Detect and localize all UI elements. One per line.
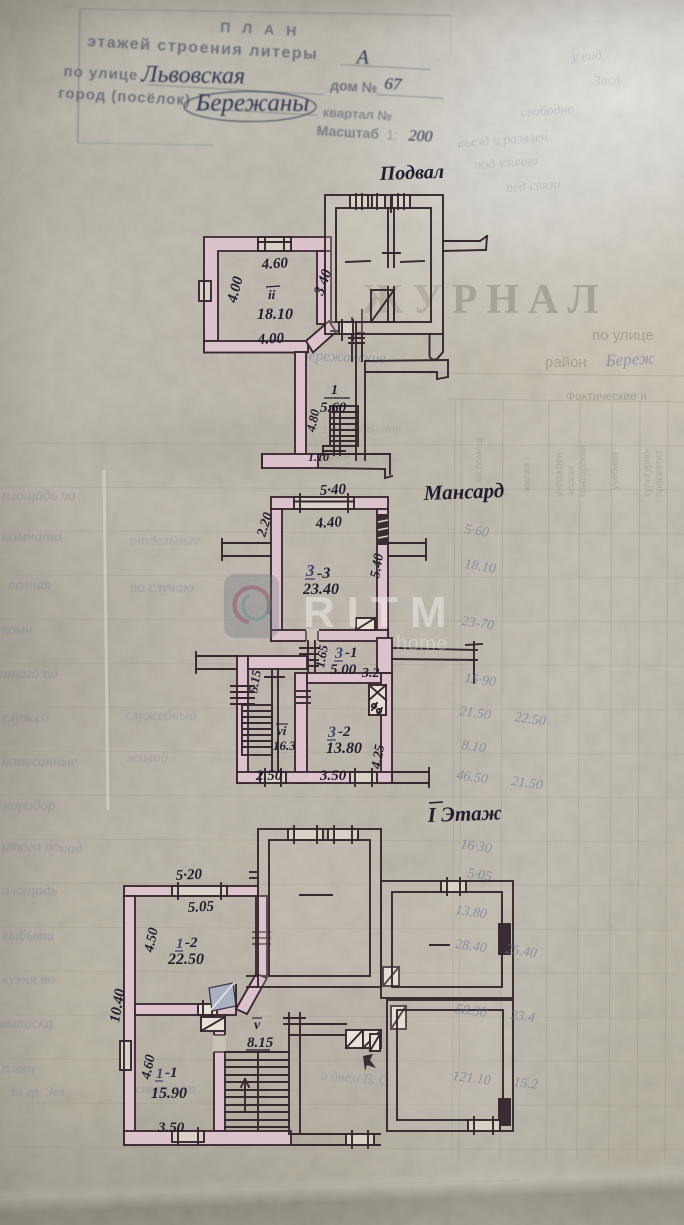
svg-text:-1: -1: [165, 1065, 178, 1081]
svg-text:над: над: [60, 841, 83, 857]
svg-text:итого по: итого по: [0, 666, 58, 682]
svg-text:итого по: итого по: [2, 839, 60, 855]
svg-text:16.3: 16.3: [273, 738, 296, 753]
svg-text:кухня по: кухня по: [2, 972, 56, 988]
svg-text:комната: комната: [2, 528, 62, 545]
svg-text:просветит: просветит: [654, 450, 665, 497]
svg-text:у вид: у вид: [570, 48, 603, 65]
svg-text:5·20: 5·20: [175, 867, 203, 884]
svg-text:-3: -3: [317, 565, 330, 582]
svg-text:5·40: 5·40: [319, 482, 347, 499]
svg-text:1: 1: [176, 936, 184, 952]
svg-text:написанные: написанные: [2, 754, 78, 770]
svg-text:2.50: 2.50: [255, 768, 283, 784]
svg-text:1: 1: [156, 1066, 164, 1082]
svg-text:учрежден-: учрежден-: [554, 449, 565, 497]
svg-text:15.2: 15.2: [513, 1075, 539, 1093]
svg-text:5.05: 5.05: [187, 899, 215, 916]
svg-text:1.10: 1.10: [308, 450, 329, 464]
svg-text:3: 3: [327, 724, 336, 741]
svg-text:дом №: дом №: [330, 77, 378, 96]
svg-text:1: 1: [331, 383, 338, 398]
svg-text:коридор: коридор: [4, 798, 56, 814]
svg-text:-2: -2: [338, 724, 351, 740]
svg-text:15.90: 15.90: [151, 1085, 187, 1102]
svg-text:3.50: 3.50: [157, 1120, 185, 1136]
svg-text:4.00: 4.00: [256, 331, 285, 348]
svg-text:Береж: Береж: [604, 348, 655, 370]
svg-text:Мансард: Мансард: [422, 478, 504, 505]
svg-text:жилой: жилой: [125, 750, 169, 766]
svg-text:площадь ча: площадь ча: [2, 488, 76, 504]
svg-text:Фактические и: Фактические и: [566, 389, 647, 403]
svg-text:Подвал: Подвал: [378, 161, 444, 185]
svg-text:22.50: 22.50: [167, 951, 204, 968]
svg-text:23.4: 23.4: [510, 1008, 536, 1026]
svg-text:1:: 1:: [386, 127, 398, 143]
svg-text:жилая: жилая: [522, 463, 533, 492]
svg-text:площадь: площадь: [2, 883, 58, 899]
svg-text:площ: площ: [2, 1061, 35, 1077]
svg-text:v: v: [254, 1018, 261, 1033]
svg-text:А: А: [354, 46, 369, 68]
svg-text:полная: полная: [8, 577, 51, 593]
svg-text:Львовская: Львовская: [140, 61, 245, 89]
svg-text:home: home: [396, 633, 448, 655]
svg-text:RITM: RITM: [303, 588, 459, 637]
svg-text:I Этаж: I Этаж: [426, 800, 502, 827]
svg-text:служебный: служебный: [125, 708, 198, 724]
svg-text:по улице: по улице: [592, 327, 654, 344]
svg-text:за гр. Зел: за гр. Зел: [9, 1085, 64, 1100]
svg-text:5.00: 5.00: [330, 662, 357, 678]
svg-text:по случаю: по случаю: [130, 580, 194, 596]
svg-text:культурно-: культурно-: [642, 448, 653, 497]
svg-text:конторская: конторская: [578, 445, 589, 497]
svg-text:3.50: 3.50: [319, 768, 347, 784]
svg-text:-1: -1: [345, 645, 358, 661]
svg-text:4.40: 4.40: [314, 514, 343, 532]
svg-text:район: район: [545, 354, 587, 371]
svg-text:служеб: служеб: [2, 710, 49, 726]
svg-text:комн: комн: [2, 622, 32, 638]
svg-text:учебная: учебная: [609, 452, 621, 490]
svg-text:3: 3: [334, 645, 343, 662]
svg-text:200: 200: [408, 127, 433, 145]
svg-text:8.15: 8.15: [247, 1035, 274, 1051]
svg-text:vi: vi: [277, 723, 287, 738]
svg-text:отдельные: отдельные: [130, 533, 200, 549]
svg-text:3.2: 3.2: [361, 666, 380, 681]
svg-text:5.60: 5.60: [320, 400, 347, 416]
svg-text:ческая: ческая: [566, 466, 577, 497]
svg-text:-2: -2: [185, 935, 198, 951]
svg-text:13.80: 13.80: [326, 740, 362, 757]
svg-text:выбывш: выбывш: [2, 928, 54, 944]
svg-text:67: 67: [384, 74, 404, 94]
svg-text:ii: ii: [268, 287, 276, 302]
svg-text:18.10: 18.10: [257, 306, 293, 323]
svg-text:ая помещ: ая помещ: [474, 438, 485, 483]
svg-text:выписка: выписка: [0, 1016, 52, 1032]
svg-text:3: 3: [305, 561, 315, 580]
svg-text:Засл: Засл: [593, 73, 620, 90]
svg-text:4.60: 4.60: [260, 255, 289, 273]
